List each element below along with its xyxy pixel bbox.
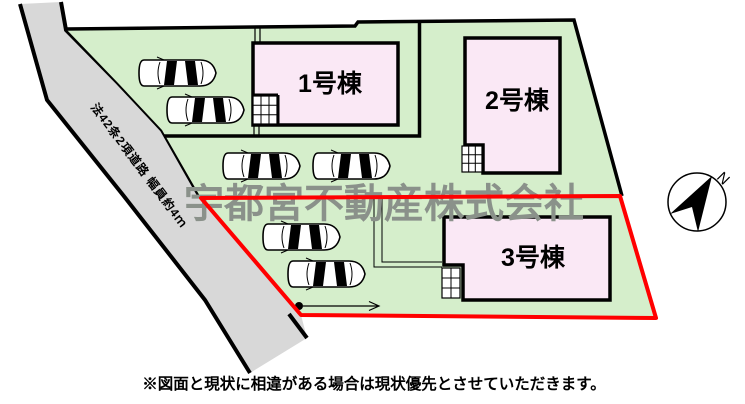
car-icon xyxy=(223,150,300,182)
car-icon xyxy=(288,258,365,290)
building-2-label: 2号棟 xyxy=(485,87,550,115)
porch-grid-2 xyxy=(462,146,482,172)
car-icon xyxy=(167,94,244,126)
watermark: 宇都宮不動産株式会社 xyxy=(184,182,584,226)
car-icon xyxy=(139,57,216,89)
building-3-label: 3号棟 xyxy=(501,244,566,272)
site-plan: 法42条2項道路 幅員約4ｍ 1号棟 2号棟 3号棟 宇都宮不動産株式会社 N … xyxy=(0,0,745,404)
disclaimer-note: ※図面と現状に相違がある場合は現状優先とさせていただきます。 xyxy=(142,374,605,393)
site-plan-drawing: 法42条2項道路 幅員約4ｍ 1号棟 2号棟 3号棟 宇都宮不動産株式会社 N … xyxy=(0,0,745,404)
car-icon xyxy=(313,150,390,182)
north-compass: N xyxy=(668,169,733,232)
porch-grid-3 xyxy=(442,268,460,298)
building-1-label: 1号棟 xyxy=(298,70,363,98)
porch-grid-1 xyxy=(253,96,277,124)
